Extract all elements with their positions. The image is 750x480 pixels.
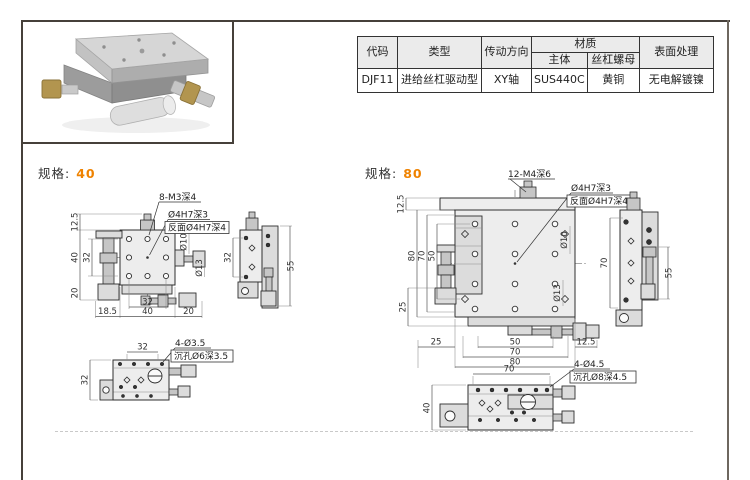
- dim-label: 70: [600, 258, 610, 269]
- dim-label: 50: [510, 338, 521, 348]
- col-header-code: 代码: [358, 37, 398, 69]
- annotation-pin-back: 反面Ø4H7深4: [168, 223, 226, 234]
- table-row: DJF11 进给丝杠驱动型 XY轴 SUS440C 黄铜 无电解镀镍: [358, 69, 714, 93]
- col-header-type: 类型: [398, 37, 482, 69]
- cell-surface: 无电解镀镍: [639, 69, 713, 93]
- cell-direction: XY轴: [482, 69, 532, 93]
- dim-label: 55: [287, 261, 297, 272]
- annotation-cbore: 沉孔Ø6深3.5: [174, 351, 228, 362]
- dim-label: 20: [71, 288, 81, 299]
- annotation-holes: 4-Ø4.5: [574, 359, 604, 370]
- dim-label: 70: [510, 348, 521, 358]
- dim-label: Ø10: [559, 231, 570, 249]
- dim-label: 12.5: [577, 338, 596, 348]
- spec40-bottom-view: 32 4-Ø3.5 沉孔Ø6深3.5 32: [81, 338, 234, 400]
- dim-label: Ø10: [179, 233, 190, 251]
- col-header-surface: 表面处理: [639, 37, 713, 69]
- product-photo: [24, 23, 232, 141]
- col-header-direction: 传动方向: [482, 37, 532, 69]
- dim-label: 32: [81, 375, 91, 386]
- dim-label: 70: [504, 365, 515, 375]
- dim-label: 70: [418, 251, 428, 262]
- annotation-cbore: 沉孔Ø8深4.5: [573, 372, 627, 383]
- dim-label: 55: [665, 268, 675, 279]
- page-border-right: [727, 20, 729, 480]
- cell-material-nut: 黄铜: [587, 69, 639, 93]
- dim-label: 32: [142, 298, 153, 308]
- dim-label: 40: [71, 252, 81, 263]
- spec40-label: 规格:: [38, 166, 70, 181]
- spec40-front-view: 12.5 40 32 20 32 18.5 40 20 Ø10 Ø13 8-M3…: [71, 192, 230, 318]
- cell-material-body: SUS440C: [532, 69, 588, 93]
- annotation-holes: 8-M3深4: [159, 192, 196, 203]
- col-header-material-body: 主体: [532, 53, 588, 69]
- product-photo-box: [21, 20, 234, 144]
- dim-label: Ø13: [194, 259, 205, 277]
- dim-label: 20: [183, 307, 194, 317]
- annotation-holes: 12-M4深6: [508, 169, 551, 180]
- dim-label: Ø13: [552, 284, 563, 302]
- spec40-drawing: 12.5 40 32 20 32 18.5 40 20 Ø10 Ø13 8-M3…: [55, 180, 350, 432]
- dim-label: 32: [224, 252, 234, 263]
- annotation-pin: Ø4H7深3: [168, 210, 208, 221]
- dim-label: 25: [399, 302, 409, 313]
- dim-label: 12.5: [397, 195, 407, 214]
- dim-label: 80: [408, 251, 418, 262]
- spec80-side-view: 70 55: [600, 192, 675, 326]
- cell-code: DJF11: [358, 69, 398, 93]
- spec80-bottom-view: 70 4-Ø4.5 沉孔Ø8深4.5 40: [423, 359, 637, 430]
- dim-label: 50: [428, 251, 438, 262]
- col-header-material-nut: 丝杠螺母: [587, 53, 639, 69]
- spec-table: 代码 类型 传动方向 材质 表面处理 主体 丝杠螺母 DJF11 进给丝杠驱动型…: [357, 36, 714, 93]
- dim-label: 25: [431, 338, 442, 348]
- cell-type: 进给丝杠驱动型: [398, 69, 482, 93]
- annotation-pin-back: 反面Ø4H7深4: [570, 196, 628, 207]
- annotation-holes: 4-Ø3.5: [175, 338, 205, 349]
- dim-label: 32: [137, 343, 148, 353]
- dim-label: 32: [83, 252, 93, 263]
- dim-label: 40: [142, 307, 153, 317]
- col-header-material: 材质: [532, 37, 640, 53]
- annotation-pin: Ø4H7深3: [571, 183, 611, 194]
- dim-label: 12.5: [71, 213, 81, 232]
- dim-label: 18.5: [98, 307, 117, 317]
- spec80-drawing: 12.5 80 70 50 25 25 50 12.5 70 80 Ø10 Ø1…: [390, 168, 710, 460]
- spec80-front-view: 12.5 80 70 50 25 25 50 12.5 70 80 Ø10 Ø1…: [397, 169, 634, 368]
- spec40-size: 40: [76, 166, 95, 181]
- dim-label: 40: [423, 403, 433, 414]
- spec40-side-view: 32 55: [224, 212, 297, 308]
